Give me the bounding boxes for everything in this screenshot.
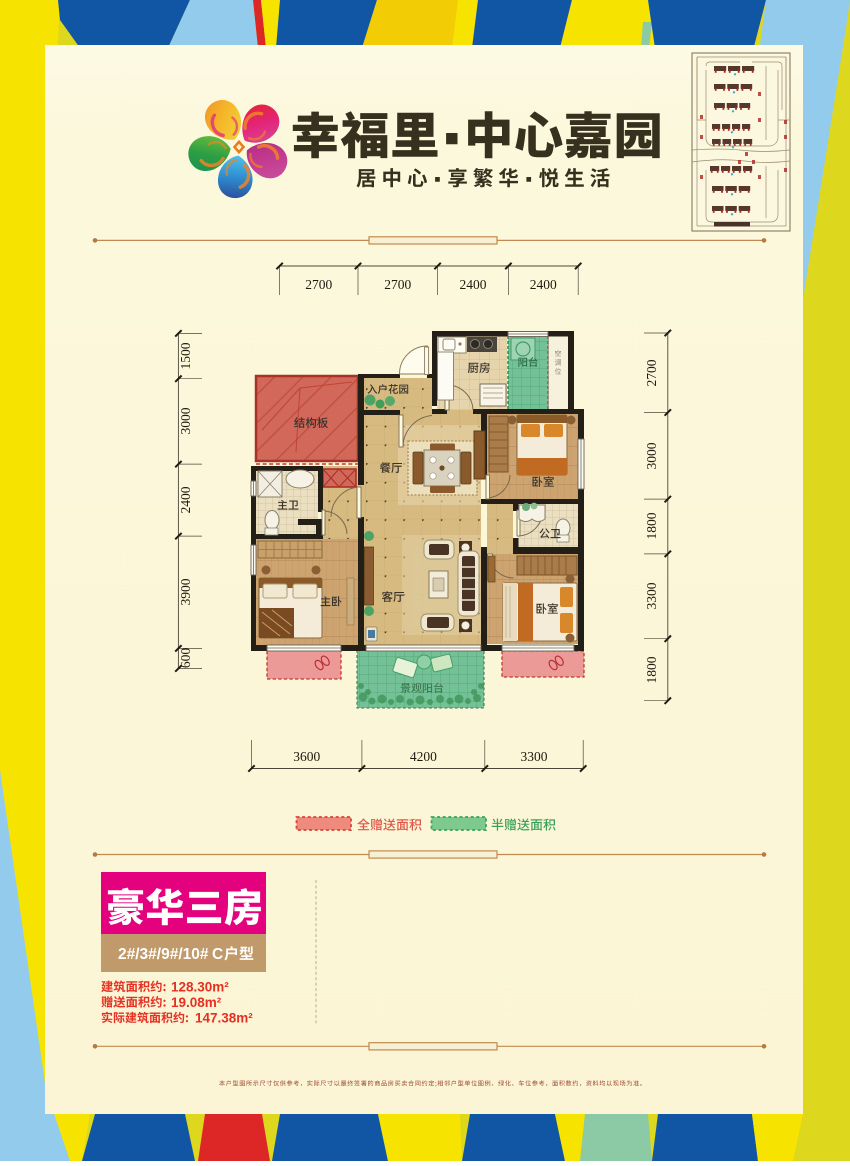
svg-text:2400: 2400 xyxy=(178,486,193,513)
svg-text:3000: 3000 xyxy=(644,442,659,469)
svg-text:2400: 2400 xyxy=(460,277,487,292)
svg-text:1500: 1500 xyxy=(178,342,193,369)
svg-text:2400: 2400 xyxy=(530,277,557,292)
svg-text:2700: 2700 xyxy=(644,359,659,386)
svg-text:1800: 1800 xyxy=(644,656,659,683)
svg-text:1800: 1800 xyxy=(644,512,659,539)
svg-text:2700: 2700 xyxy=(305,277,332,292)
svg-text:C: C xyxy=(212,946,223,963)
svg-text:3000: 3000 xyxy=(178,407,193,434)
svg-text:128.30m²: 128.30m² xyxy=(171,980,229,995)
svg-text:600: 600 xyxy=(178,648,193,669)
svg-text:2#/3#/9#/10#: 2#/3#/9#/10# xyxy=(118,946,209,963)
svg-text:3900: 3900 xyxy=(178,578,193,605)
svg-text:3600: 3600 xyxy=(293,749,320,764)
svg-text:19.08m²: 19.08m² xyxy=(171,995,222,1010)
svg-text:3300: 3300 xyxy=(521,749,548,764)
svg-text:147.38m²: 147.38m² xyxy=(195,1011,253,1026)
svg-text:2700: 2700 xyxy=(384,277,411,292)
svg-text:4200: 4200 xyxy=(410,749,437,764)
svg-text:3300: 3300 xyxy=(644,582,659,609)
